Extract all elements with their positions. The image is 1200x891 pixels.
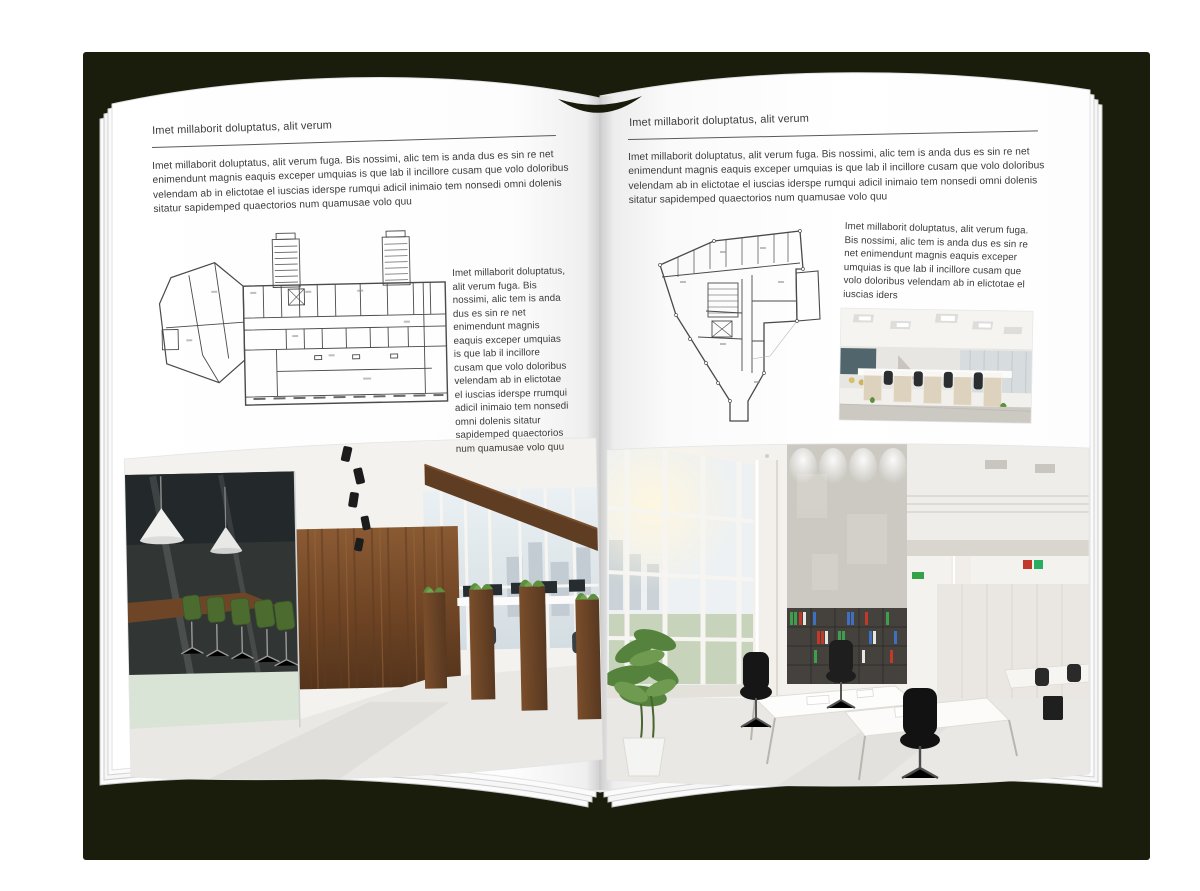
left-page-side-text: Imet millaborit doluptatus, alit verum f… xyxy=(452,265,572,457)
small-office-photo xyxy=(839,308,1033,423)
left-page-intro: Imet millaborit doluptatus, alit verum f… xyxy=(152,148,572,218)
right-page-side-text: Imet millaborit doluptatus, alit verum f… xyxy=(843,220,1043,306)
magazine-spread-mockup: Imet millaborit doluptatus, alit verum I… xyxy=(0,0,1200,891)
left-office-photo xyxy=(124,433,603,789)
right-office-photo xyxy=(567,420,1089,792)
right-page-intro: Imet millaborit doluptatus, alit verum f… xyxy=(628,145,1053,209)
